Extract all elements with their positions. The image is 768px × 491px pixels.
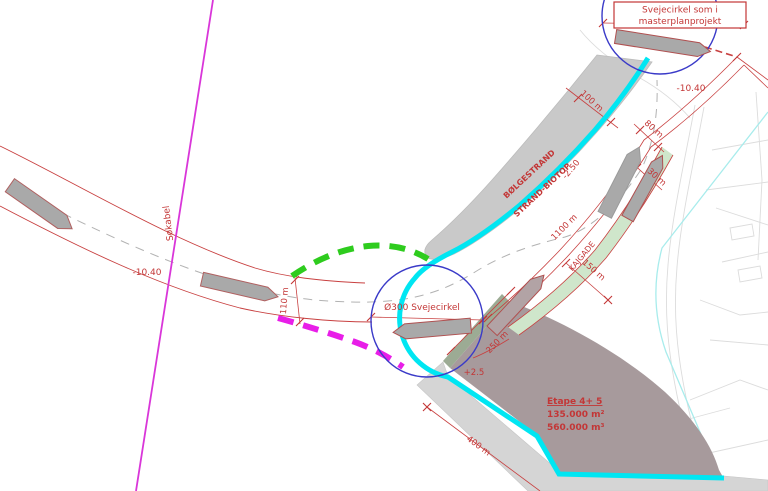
site-plan-canvas: Søkabel -10.40 110 m Ø300 Svejecirkel +2… [0, 0, 768, 491]
ship-in-masterplan-circle [614, 30, 711, 59]
sea-cable-line [136, 0, 213, 491]
dim-1100-label: 1100 m [550, 213, 580, 243]
background-road-line [675, 107, 704, 454]
etape-area-value: 135.000 m² [547, 410, 605, 420]
etape-text-block: Etape 4+ 5 135.000 m² 560.000 m³ [547, 397, 605, 433]
ship-channel-mid [200, 272, 279, 303]
masterplan-callout: Svejecirkel som i masterplanprojekt [614, 2, 746, 28]
mouth-width-label: 110 m [279, 287, 291, 315]
dim-80-label: 80 m [642, 119, 665, 141]
channel-depth-label: -10.40 [132, 268, 161, 278]
ne-depth-label: -10.40 [676, 84, 705, 94]
masterplan-callout-line2: masterplanprojekt [639, 17, 722, 27]
background-parcel-lines [756, 92, 762, 260]
background-building-outlines [730, 224, 762, 282]
dim-extension-lines [737, 57, 768, 88]
level-plus-label: +2.5 [464, 368, 485, 378]
masterplan-callout-line1: Svejecirkel som i [642, 6, 718, 16]
dim-line-110 [295, 278, 300, 324]
site-plan-svg: Søkabel -10.40 110 m Ø300 Svejecirkel +2… [0, 0, 768, 491]
background-parcel-lines [700, 140, 768, 345]
roundabout-circle-label: Ø300 Svejecirkel [384, 302, 460, 313]
etape-title: Etape 4+ 5 [547, 397, 602, 407]
etape-volume-value: 560.000 m³ [547, 423, 605, 433]
sea-cable-label: Søkabel [162, 205, 176, 242]
green-dashed-option-arc [292, 246, 428, 276]
ship-in-roundabout-circle [392, 318, 471, 340]
